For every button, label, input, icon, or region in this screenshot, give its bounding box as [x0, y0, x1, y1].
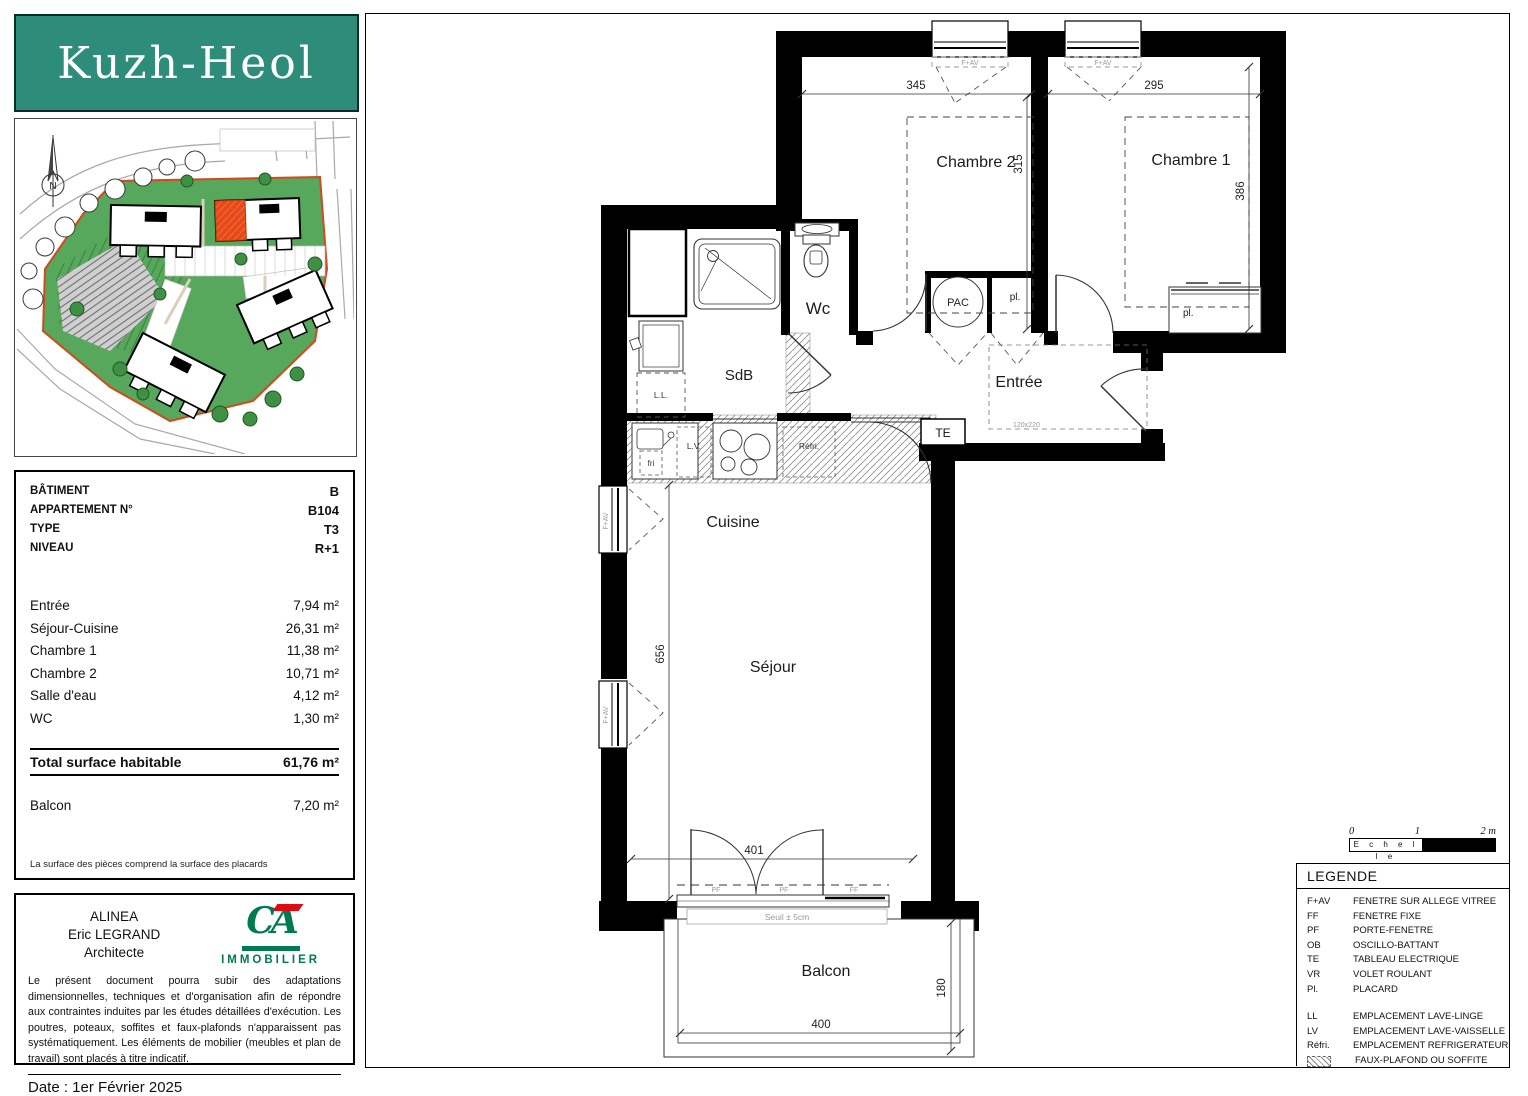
scale-tick-1: 1 [1415, 826, 1420, 837]
ca-logo-underline [242, 946, 300, 951]
table-row: TYPET3 [30, 520, 339, 539]
seuil-label: Seuil ± 5cm [765, 912, 809, 922]
wc-fixtures [795, 223, 839, 277]
cooktop [713, 423, 777, 479]
scale-tick-2: 2 m [1481, 826, 1496, 837]
window-label: F+AV [603, 706, 610, 724]
window-fav-top-2: F+AV [1065, 21, 1141, 101]
technical-shaft [629, 229, 686, 316]
placard-label: pl. [1010, 292, 1021, 303]
window-label: FF [850, 887, 859, 894]
window-label: F+AV [1094, 60, 1112, 67]
window-label: PF [780, 887, 789, 894]
project-name: Kuzh-Heol [57, 38, 316, 89]
window-swing [629, 489, 663, 550]
table-row: BÂTIMENTB [30, 482, 339, 501]
door-size-label: 120x220 [1013, 422, 1040, 429]
legend-item: F+AVFENETRE SUR ALLEGE VITREE [1307, 895, 1509, 910]
window-swing [629, 683, 663, 745]
dim-ch1-width: 295 [1144, 80, 1163, 92]
room-label-entree: Entrée [995, 374, 1042, 391]
table-row: Entrée7,94 m² [30, 595, 339, 618]
legend-item: Réfri.EMPLACEMENT REFRIGERATEUR [1307, 1039, 1509, 1054]
window-label: F+AV [603, 512, 610, 530]
room-label-chambre2: Chambre 2 [936, 154, 1015, 171]
electrical-panel: TE [921, 419, 965, 445]
window-swing [1067, 67, 1141, 101]
legend-item: PFPORTE-FENETRE [1307, 924, 1509, 939]
dim-sejour-height: 656 [655, 644, 667, 663]
apartment-info-table: BÂTIMENTB APPARTEMENT N°B104 TYPET3 NIVE… [14, 470, 355, 880]
table-row: WC1,30 m² [30, 708, 339, 731]
closet-swing [991, 333, 1043, 365]
door-entrance [1101, 369, 1146, 431]
architect-names: ALINEA Eric LEGRAND Architecte [28, 908, 200, 962]
toilet [803, 235, 830, 277]
floorplan-document: { "project": {"name": "Kuzh-Heol"}, "sit… [0, 0, 1528, 1079]
door-chambre1 [1056, 275, 1113, 333]
floorplan-panel: F+AV F+AV F+AV F+AV [365, 13, 1510, 1068]
window-swing [936, 67, 1006, 103]
hatch-swatch-icon [1307, 1056, 1331, 1067]
legend-item: Pl.PLACARD [1307, 983, 1509, 998]
shower [694, 239, 780, 309]
window-label: PF [712, 887, 721, 894]
table-row: Séjour-Cuisine26,31 m² [30, 618, 339, 641]
balcony-structure [664, 919, 974, 1057]
window-fav-top-1: F+AV [932, 21, 1008, 103]
window-label: F+AV [961, 60, 979, 67]
dim-ch1-height: 386 [1235, 181, 1247, 200]
room-label-balcon: Balcon [802, 963, 851, 980]
legend-item: FFFENETRE FIXE [1307, 910, 1509, 925]
bathroom-fixtures: L.L. [629, 229, 780, 417]
legend: LEGENDE F+AVFENETRE SUR ALLEGE VITREE FF… [1296, 863, 1509, 1066]
surface-note: La surface des pièces comprend la surfac… [30, 859, 268, 870]
svg-text:TE: TE [935, 426, 950, 440]
total-surface-row: Total surface habitable61,76 m² [30, 748, 339, 776]
balcony-row: Balcon7,20 m² [30, 798, 339, 813]
legend-item: TETABLEAU ELECTRIQUE [1307, 953, 1509, 968]
legend-item: FAUX-PLAFOND OU SOFFITE [1307, 1054, 1509, 1069]
legend-item: LLEMPLACEMENT LAVE-LINGE [1307, 1010, 1509, 1025]
chambre1-dashed-zone [1125, 117, 1249, 307]
placard-label: pl. [1183, 308, 1194, 319]
washing-machine-slot: L.L. [637, 373, 685, 417]
legend-separator [1297, 888, 1509, 889]
door-chambre2 [873, 274, 926, 331]
site-plan-drawing: N [15, 119, 354, 454]
architect-block: ALINEA Eric LEGRAND Architecte CA IMMOBI… [14, 893, 355, 1065]
scale-tick-0: 0 [1349, 826, 1354, 837]
washbasin [795, 223, 839, 236]
table-row: Chambre 111,38 m² [30, 640, 339, 663]
window-fav-left-2: F+AV [599, 681, 663, 748]
legend-item: VRVOLET ROULANT [1307, 968, 1509, 983]
site-plan-map: N [14, 118, 357, 457]
vanity-sink [630, 321, 683, 371]
closet-swing [929, 333, 987, 365]
table-row: APPARTEMENT N°B104 [30, 501, 339, 520]
room-label-cuisine: Cuisine [706, 514, 759, 531]
scale-black-segment [1423, 839, 1495, 851]
legend-item: OBOSCILLO-BATTANT [1307, 939, 1509, 954]
north-compass: N [42, 135, 64, 207]
dim-sejour-width: 401 [744, 845, 763, 857]
table-row: Salle d'eau4,12 m² [30, 685, 339, 708]
balcony-door-band: PF PF FF Seuil ± 5cm [677, 829, 889, 924]
room-label-chambre1: Chambre 1 [1151, 152, 1230, 169]
scale-bar: 0 1 2 m E c h e l l e [1349, 826, 1496, 852]
ca-logo-icon: CA [246, 903, 295, 945]
chambre1-placard: pl. [1169, 283, 1261, 333]
room-label-sejour: Séjour [750, 659, 797, 676]
ca-logo-red-accent [272, 904, 303, 911]
table-row: NIVEAUR+1 [30, 539, 339, 558]
scale-label: E c h e l l e [1350, 839, 1423, 851]
legend-title: LEGENDE [1307, 868, 1509, 884]
fri-label: fri [648, 459, 655, 468]
building-a [110, 205, 201, 258]
svg-text:L.L.: L.L. [654, 390, 668, 400]
kitchen-sink: fri [632, 423, 698, 479]
svg-text:L.V.: L.V. [687, 441, 701, 451]
svg-text:Réfri.: Réfri. [799, 441, 819, 451]
dim-balcon-depth: 180 [936, 978, 948, 997]
room-label-sdb: SdB [725, 367, 753, 384]
room-label-wc: Wc [806, 299, 831, 318]
legal-disclaimer: Le présent document pourra subir des ada… [28, 974, 341, 1067]
pac-label: PAC [947, 297, 969, 309]
project-logo-banner: Kuzh-Heol [14, 14, 359, 112]
table-row: Chambre 210,71 m² [30, 663, 339, 686]
window-fav-left-1: F+AV [599, 486, 663, 553]
dim-ch2-width: 345 [906, 80, 925, 92]
document-date: Date : 1er Février 2025 [28, 1074, 341, 1096]
ca-immobilier-logo: CA IMMOBILIER [200, 903, 341, 966]
highlighted-unit [215, 200, 246, 241]
north-label: N [49, 181, 56, 192]
dim-balcon-width: 400 [811, 1019, 830, 1031]
legend-item: LVEMPLACEMENT LAVE-VAISSELLE [1307, 1025, 1509, 1040]
